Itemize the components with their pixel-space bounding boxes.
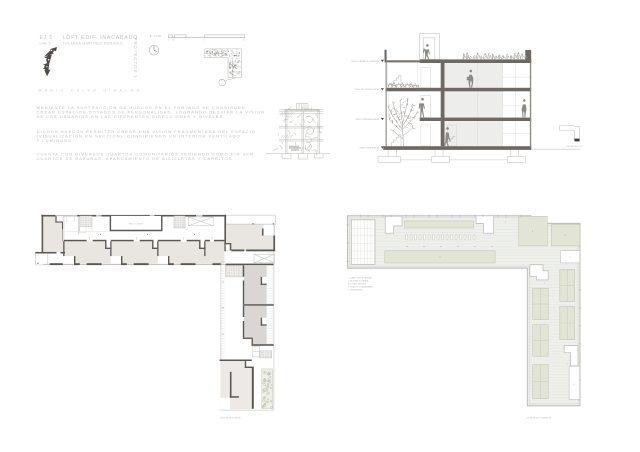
svg-text:0: 0: [168, 40, 169, 42]
svg-text:E: 1/200: E: 1/200: [150, 35, 162, 38]
svg-text:NIVEL SEGUNDA PLANTA: NIVEL SEGUNDA PLANTA: [355, 88, 380, 91]
svg-text:LOFT EDIF. INACABADO: LOFT EDIF. INACABADO: [63, 35, 139, 41]
svg-text:Y LUMINOSO.: Y LUMINOSO.: [37, 138, 75, 143]
svg-text:CUARTOS DE BASURAS, APARCAMIEN: CUARTOS DE BASURAS, APARCAMIENTO DE BICI…: [37, 156, 239, 161]
svg-text:DE LOS USUARIOS EN LAS DIFEREN: DE LOS USUARIOS EN LAS DIFERENTES DIRECC…: [37, 114, 226, 119]
svg-text:SEGUNDA PLANTA: SEGUNDA PLANTA: [220, 417, 241, 420]
svg-text:ESCALERA TIPO: ESCALERA TIPO: [566, 145, 583, 148]
svg-text:PROYECTOS 1: PROYECTOS 1: [133, 38, 138, 79]
svg-text:LAB 3:: LAB 3:: [40, 41, 52, 45]
svg-text:5. TENDEDERO: 5. TENDEDERO: [348, 290, 364, 292]
svg-text:EJ 5:: EJ 5:: [40, 35, 56, 41]
svg-text:1: 1: [172, 40, 173, 42]
svg-text:2. PLACAS SOLARES: 2. PLACAS SOLARES: [348, 280, 369, 283]
svg-text:10: 10: [243, 40, 245, 42]
svg-text:3. ZONAS VERDES: 3. ZONAS VERDES: [348, 283, 367, 286]
svg-text:2: 2: [174, 40, 175, 42]
svg-text:NIVEL PLANTA BAJA: NIVEL PLANTA BAJA: [359, 147, 379, 150]
svg-text:MARIO CALVO HIDALGO: MARIO CALVO HIDALGO: [39, 89, 143, 93]
svg-text:NIVEL PRIMERA PLANTA: NIVEL PRIMERA PLANTA: [355, 118, 379, 121]
svg-text:YOLANDA MARTINEZ DOMINGO: YOLANDA MARTINEZ DOMINGO: [63, 41, 123, 45]
svg-text:4. CUARTO COMUNITARIO: 4. CUARTO COMUNITARIO: [348, 286, 374, 289]
svg-text:5: 5: [204, 40, 205, 42]
svg-text:PATIO COMUN: PATIO COMUN: [129, 222, 144, 225]
svg-text:3: 3: [185, 40, 186, 42]
svg-text:NIVEL PLANTA DE CUBIERTA: NIVEL PLANTA DE CUBIERTA: [351, 60, 379, 63]
svg-text:1. CASETON ESCALERA: 1. CASETON ESCALERA: [348, 277, 372, 280]
svg-text:PLANTA DE CUBIERTA: PLANTA DE CUBIERTA: [527, 416, 552, 419]
